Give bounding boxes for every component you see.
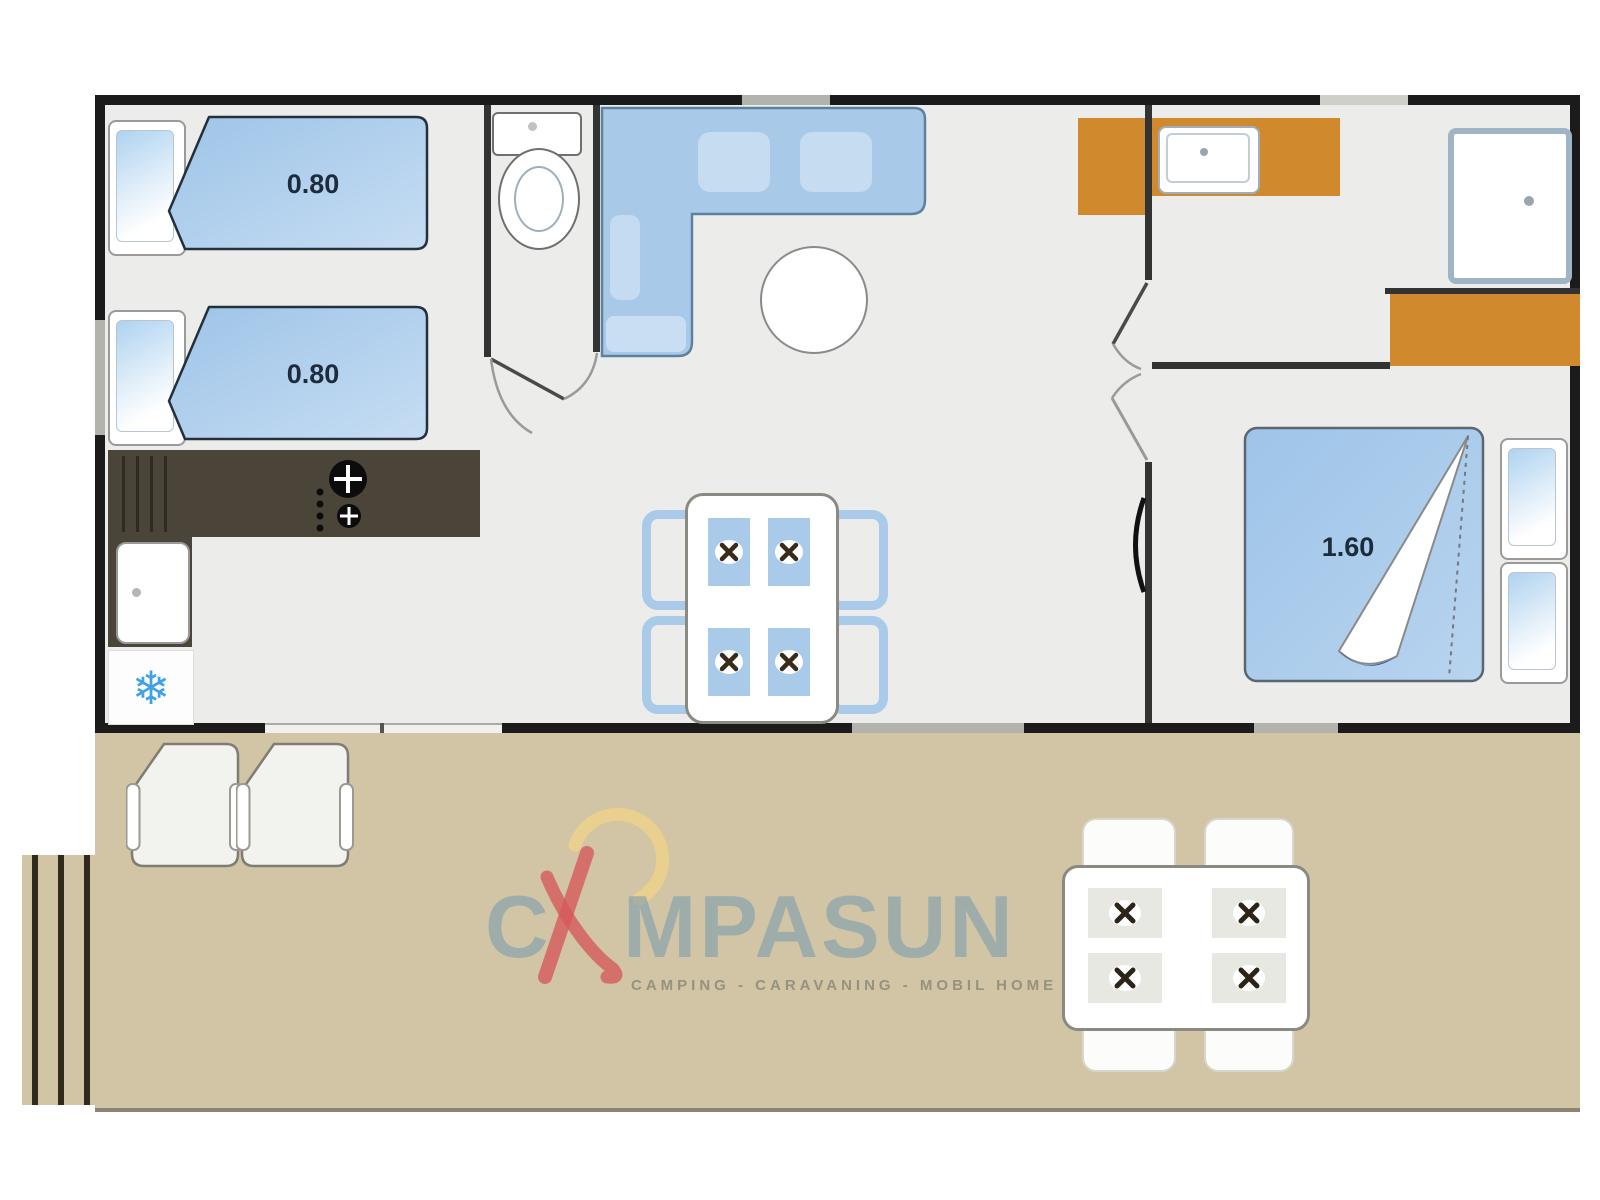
placemat-cutlery-icon: [768, 628, 810, 696]
window-left-bedroom: [95, 320, 105, 435]
wardrobe: [1390, 294, 1580, 366]
logo-tagline: CAMPING - CARAVANING - MOBIL HOME: [631, 977, 1057, 994]
single-bed-2: 0.80: [163, 301, 439, 449]
placemat-cutlery-icon: [1212, 888, 1286, 938]
snowflake-icon: ❄: [132, 665, 171, 711]
terrace-steps: [22, 855, 100, 1105]
sofa-end-seat: [606, 316, 686, 352]
placemat-cutlery-icon: [1212, 953, 1286, 1003]
window-bottom-master: [1254, 723, 1338, 733]
step-line: [32, 855, 38, 1105]
sofa-cushion: [698, 132, 770, 192]
double-bed: 1.60: [1243, 426, 1500, 687]
washbasin: [1158, 126, 1260, 194]
wall-hall-upper: [1145, 105, 1152, 280]
logo-text-rest: MPASUN: [623, 883, 1016, 971]
terrace-door-divider: [380, 723, 384, 733]
cupboard: [1078, 118, 1145, 215]
window-top-bathroom: [1320, 95, 1408, 105]
pillow: [1508, 572, 1556, 670]
placemat-cutlery-icon: [768, 518, 810, 586]
washbasin-inner: [1166, 133, 1250, 183]
window-bottom-living: [852, 723, 1024, 733]
drain-dot: [1524, 196, 1534, 206]
wall-hall-lower: [1145, 462, 1152, 723]
floor-plan: C MPASUN CAMPING - CARAVANING - MOBIL HO…: [0, 0, 1600, 1200]
drainer-line: [164, 456, 167, 532]
armrest: [340, 784, 353, 850]
terrace-chair: [236, 738, 354, 874]
side-table: [760, 246, 868, 354]
single-bed-1: 0.80: [163, 111, 439, 259]
bed-headboard: [1500, 438, 1568, 560]
armrest: [127, 784, 140, 850]
hob-icon: [312, 452, 392, 536]
placemat-cutlery-icon: [1088, 888, 1162, 938]
terrace-chair: [126, 738, 244, 874]
fridge: ❄: [108, 650, 194, 725]
step-line: [58, 855, 64, 1105]
campasun-logo: C MPASUN CAMPING - CARAVANING - MOBIL HO…: [455, 795, 995, 1010]
pillow: [1508, 448, 1556, 546]
sofa-cushion: [800, 132, 872, 192]
drain-dot: [1200, 148, 1208, 156]
bed-size-label: 0.80: [287, 359, 340, 389]
kitchen-sink: [116, 542, 190, 644]
shower: [1448, 128, 1572, 284]
placemat-cutlery-icon: [1088, 953, 1162, 1003]
step-line: [84, 855, 90, 1105]
toilet-bowl-inner: [514, 166, 564, 232]
wall-bath-bedroom: [1152, 362, 1390, 369]
sofa-cushion: [610, 215, 640, 300]
placemat-cutlery-icon: [708, 628, 750, 696]
armrest: [237, 784, 250, 850]
drainer-line: [136, 456, 139, 532]
wall-wc-left: [484, 105, 491, 357]
placemat-cutlery-icon: [708, 518, 750, 586]
bed-size-label: 1.60: [1322, 532, 1375, 562]
toilet-tank-dot: [528, 122, 537, 131]
drainer-line: [150, 456, 153, 532]
bed-size-label: 0.80: [287, 169, 340, 199]
drainer-line: [122, 456, 125, 532]
drain-dot: [132, 588, 141, 597]
bed-headboard: [1500, 562, 1568, 684]
